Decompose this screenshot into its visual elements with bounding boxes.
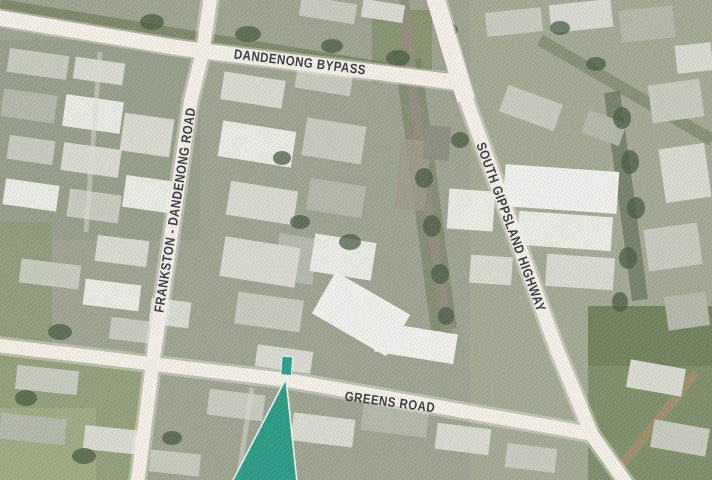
map-viewport[interactable]: DANDENONG BYPASS FRANKSTON - DANDENONG R… xyxy=(0,0,712,480)
satellite-imagery xyxy=(0,0,712,480)
marker-parcel-highlight[interactable] xyxy=(281,356,293,375)
